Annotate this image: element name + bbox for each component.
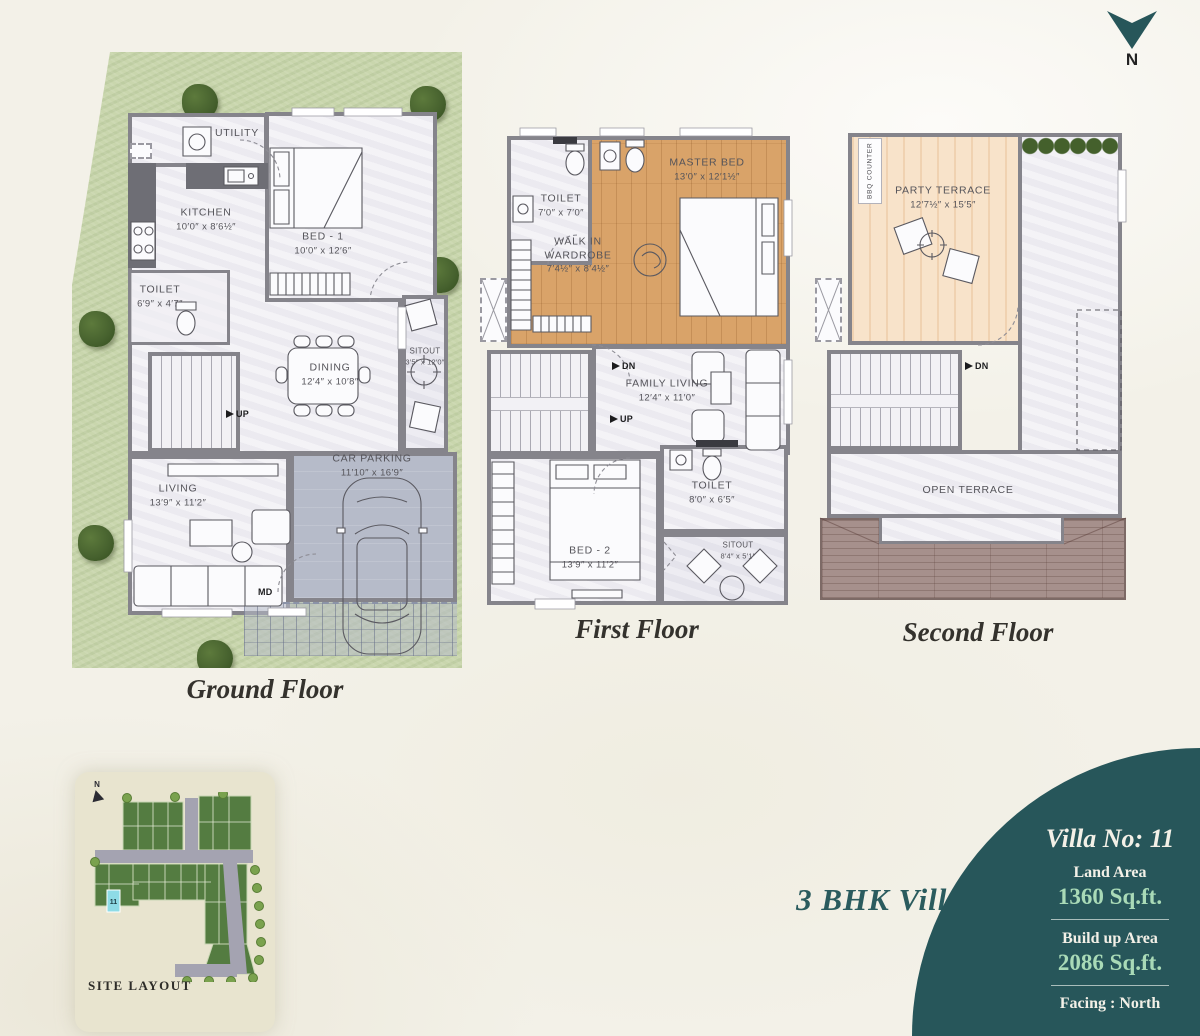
- up-arrow: UP: [226, 409, 249, 419]
- first-stairs: [487, 350, 592, 455]
- room-label-toilet1: TOILET 7′0″ x 7′0″: [538, 193, 584, 220]
- second-floor-caption: Second Floor: [903, 617, 1054, 648]
- room-label-family-living: FAMILY LIVING 12′4″ x 11′0″: [626, 378, 709, 405]
- ground-floor-plan: UTILITY KITCHEN 10′0″ x 8′6½″ BED - 1 10…: [72, 52, 462, 717]
- site-layout-card: N 11: [75, 772, 275, 1032]
- room-label-utility: UTILITY: [215, 127, 259, 141]
- window: [600, 128, 644, 136]
- tree-icon: [79, 311, 115, 347]
- site-north-label: N: [87, 780, 107, 789]
- divider: [1051, 919, 1169, 920]
- room-label-sitout-first: SITOUT 8′4″ x 5′1″: [721, 540, 756, 561]
- dn-arrow: DN: [612, 361, 636, 371]
- villa-number: Villa No: 11: [1024, 824, 1196, 854]
- villa-info-panel: Villa No: 11 Land Area 1360 Sq.ft. Build…: [912, 748, 1200, 1036]
- shaft-duct: [815, 278, 842, 342]
- room-label-master-bed: MASTER BED 13′0″ x 12′1½″: [669, 157, 744, 184]
- room-label-bed1: BED - 1 10′0″ x 12′6″: [294, 231, 351, 258]
- second-floor-plan: BBQ COUNTER PARTY TERRACE 12′7½″ x 15′5″…: [815, 110, 1135, 655]
- window: [520, 128, 556, 136]
- land-area-label: Land Area: [1024, 864, 1196, 882]
- main-door-label: MD: [258, 587, 273, 597]
- north-arrow-icon: [1106, 10, 1158, 50]
- room-label-living: LIVING 13′9″ x 11′2″: [150, 483, 207, 510]
- room-label-open-terrace: OPEN TERRACE: [922, 484, 1013, 498]
- build-area-label: Build up Area: [1024, 930, 1196, 948]
- ground-floor-caption: Ground Floor: [187, 674, 344, 705]
- kitchen-counter: [186, 163, 268, 189]
- divider: [1051, 985, 1169, 986]
- room-bed1: [265, 112, 437, 302]
- tree-icon: [197, 640, 233, 676]
- site-map: 11: [83, 792, 267, 982]
- dn-arrow: DN: [965, 361, 989, 371]
- site-layout-title: SITE LAYOUT: [88, 978, 192, 994]
- room-label-bed2: BED - 2 13′9″ x 11′2″: [562, 545, 619, 572]
- first-floor-caption: First Floor: [575, 614, 699, 645]
- room-label-toilet2: TOILET 8′0″ x 6′5″: [689, 480, 735, 507]
- room-bed2: [487, 455, 660, 605]
- bbq-counter: BBQ COUNTER: [858, 138, 882, 204]
- second-stairs: [827, 350, 962, 450]
- facing-label: Facing : North: [1024, 995, 1196, 1013]
- ground-stairs: [148, 352, 240, 452]
- shaft-duct: [480, 278, 507, 342]
- room-label-dining: DINING 12′4″ x 10′8″: [301, 362, 358, 389]
- plot-number: 11: [110, 899, 118, 906]
- tree-icon: [78, 525, 114, 561]
- shaft-duct: [130, 143, 152, 159]
- room-label-party-terrace: PARTY TERRACE 12′7½″ x 15′5″: [895, 185, 991, 212]
- land-area-value: 1360 Sq.ft.: [1024, 884, 1196, 910]
- up-arrow: UP: [610, 414, 633, 424]
- open-terrace-notch: [879, 518, 1064, 544]
- build-area-value: 2086 Sq.ft.: [1024, 950, 1196, 976]
- room-label-toilet-ground: TOILET 6′9″ x 4′7″: [137, 284, 183, 311]
- room-label-wardrobe: WALK IN WARDROBE 7′4½″ x 8′4½″: [544, 236, 611, 277]
- kitchen-counter: [128, 163, 156, 268]
- room-label-kitchen: KITCHEN 10′0″ x 8′6½″: [176, 207, 236, 234]
- room-sitout-ground: [402, 295, 448, 452]
- hedge-planter: [1022, 137, 1118, 155]
- north-label: N: [1104, 50, 1160, 70]
- window: [680, 128, 752, 136]
- first-floor-plan: TOILET 7′0″ x 7′0″ WALK IN WARDROBE 7′4½…: [480, 110, 795, 650]
- room-label-car-parking: CAR PARKING 11′10″ x 16′9″: [332, 453, 411, 480]
- room-label-sitout-ground: SITOUT 3′5″ x 12′0″: [405, 346, 444, 367]
- floor-plan-sheet: N: [0, 0, 1200, 1036]
- driveway-hatch: [244, 602, 457, 656]
